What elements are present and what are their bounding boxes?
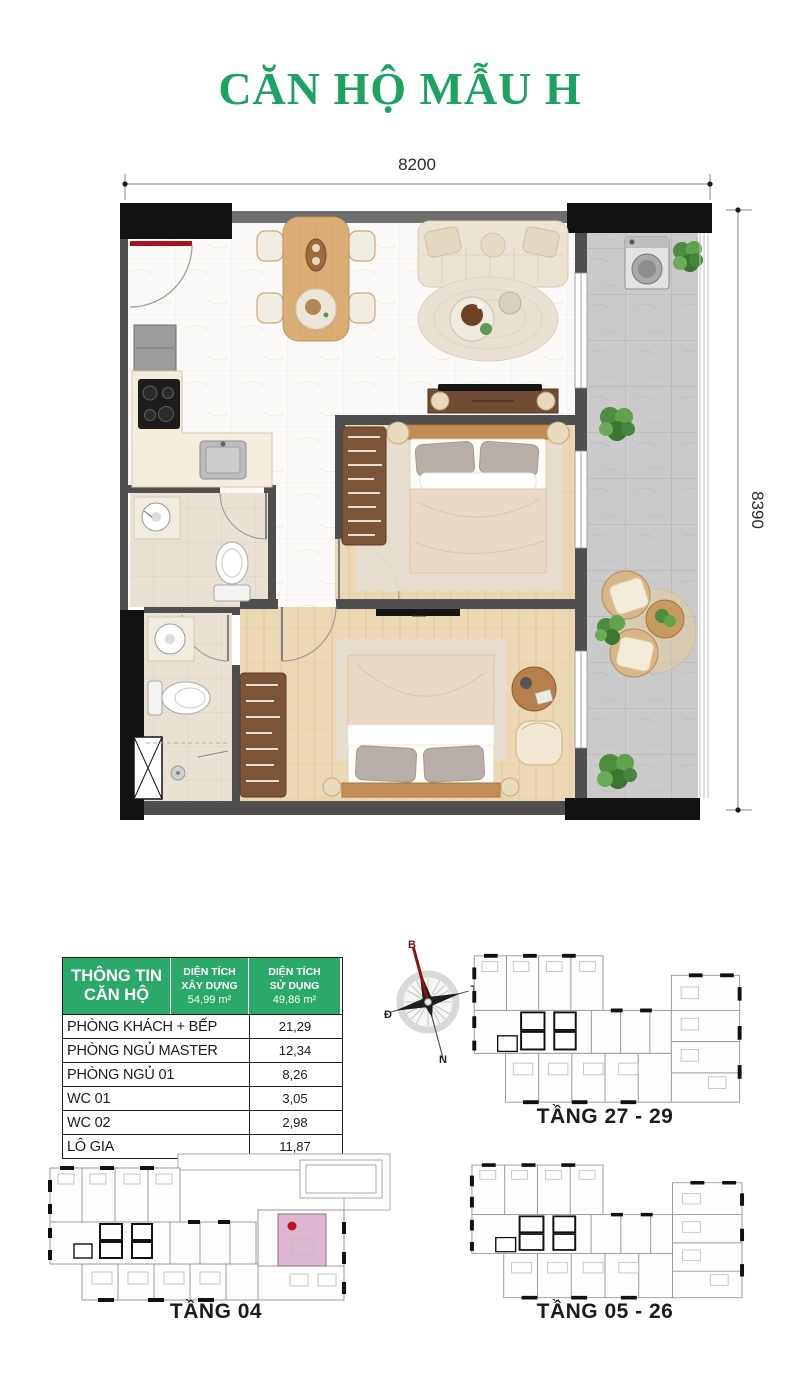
- svg-text:8390: 8390: [748, 491, 767, 529]
- key-plan-27-29-label: TẦNG 27 - 29: [462, 1105, 748, 1129]
- page-title: CĂN HỘ MẪU H: [0, 62, 800, 115]
- svg-text:N: N: [439, 1054, 447, 1066]
- dimension-top: 8200: [118, 150, 716, 202]
- header-info: THÔNG TIN CĂN HỘ: [63, 958, 171, 1014]
- key-plan-04-label: TẦNG 04: [38, 1300, 394, 1324]
- apartment-info-table: THÔNG TIN CĂN HỘ DIỆN TÍCH XÂY DỰNG 54,9…: [62, 957, 343, 1159]
- key-plan-04: [38, 1152, 394, 1302]
- svg-text:B: B: [408, 939, 416, 951]
- highlighted-unit: [278, 1214, 326, 1266]
- table-row: WC 02 2,98: [63, 1110, 342, 1134]
- table-row: PHÒNG NGỦ 01 8,26: [63, 1062, 342, 1086]
- apartment-floor-plan: [120, 203, 712, 820]
- key-plan-05-26-label: TẦNG 05 - 26: [462, 1300, 748, 1324]
- table-header: THÔNG TIN CĂN HỘ DIỆN TÍCH XÂY DỰNG 54,9…: [63, 958, 342, 1014]
- table-row: PHÒNG NGỦ MASTER 12,34: [63, 1038, 342, 1062]
- svg-text:8200: 8200: [398, 155, 436, 174]
- dimension-right: 8390: [712, 200, 770, 822]
- key-plan-27-29: [462, 948, 748, 1108]
- unit-marker-dot: [288, 1222, 297, 1231]
- key-plan-05-26: [462, 1158, 748, 1303]
- table-row: WC 01 3,05: [63, 1086, 342, 1110]
- header-usable-area: DIỆN TÍCH SỬ DỤNG 49,86 m²: [249, 958, 340, 1014]
- svg-text:Đ: Đ: [384, 1009, 392, 1021]
- header-built-area: DIỆN TÍCH XÂY DỰNG 54,99 m²: [171, 958, 249, 1014]
- table-row: PHÒNG KHÁCH + BẾP 21,29: [63, 1014, 342, 1038]
- master-bedroom: [342, 422, 569, 591]
- balcony-windows: [575, 273, 587, 748]
- service-shaft: [134, 737, 162, 799]
- plant-icon: [673, 241, 703, 272]
- brochure-page: CĂN HỘ MẪU H 8200 8390: [0, 0, 800, 1386]
